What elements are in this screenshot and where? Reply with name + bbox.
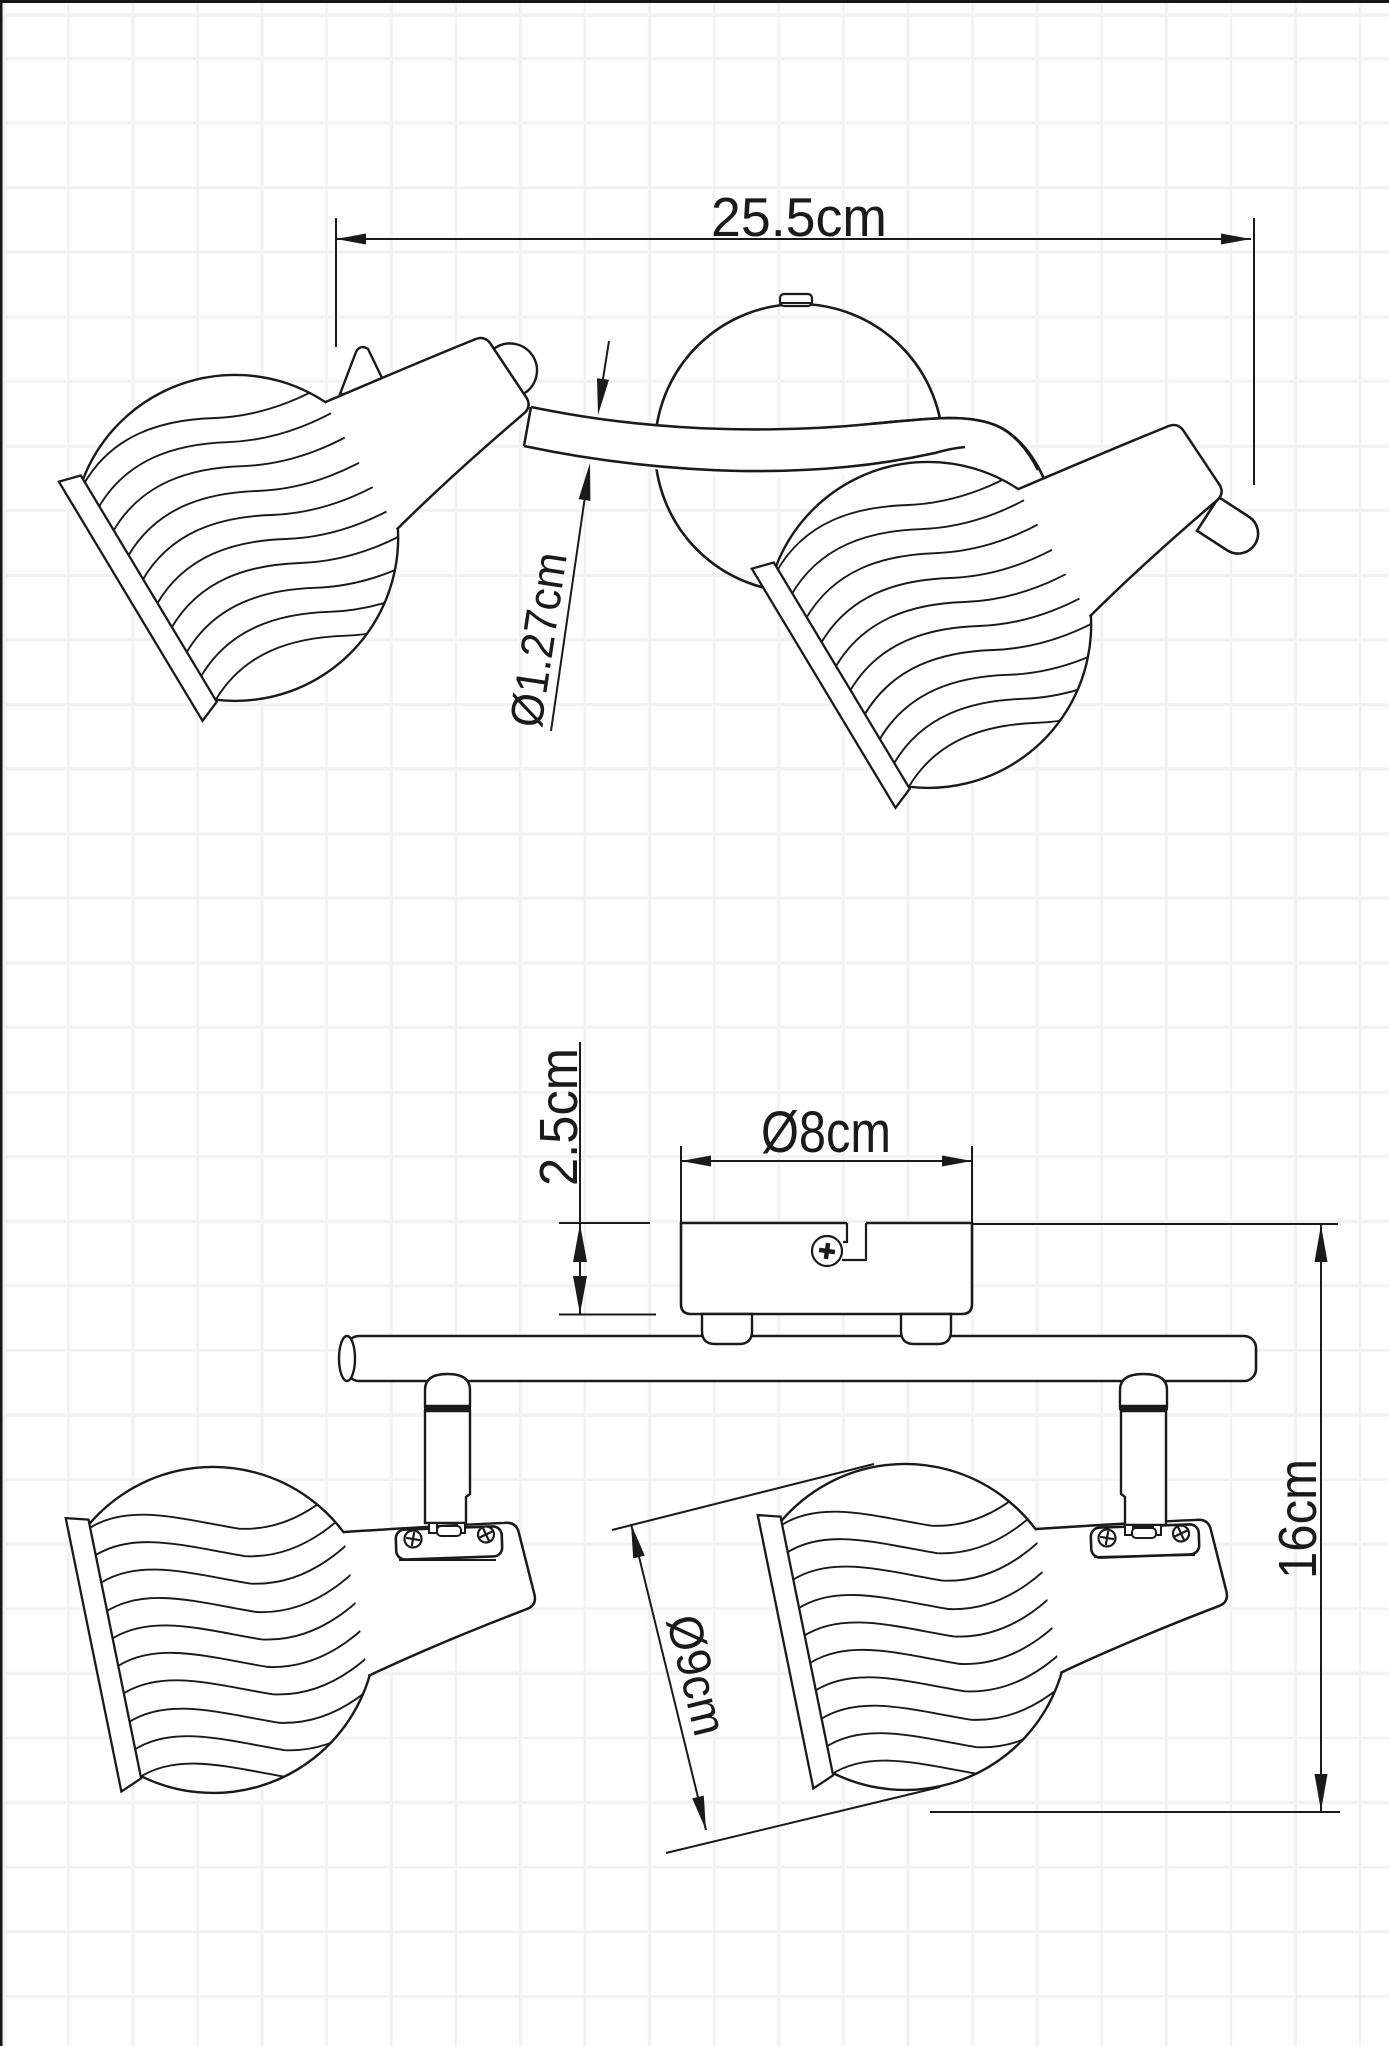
svg-text:Ø8cm: Ø8cm [761,1100,891,1165]
svg-text:25.5cm: 25.5cm [711,186,887,248]
svg-text:2.5cm: 2.5cm [529,1048,589,1186]
svg-text:Ø1.27cm: Ø1.27cm [499,549,576,731]
svg-text:16cm: 16cm [1268,1459,1328,1579]
